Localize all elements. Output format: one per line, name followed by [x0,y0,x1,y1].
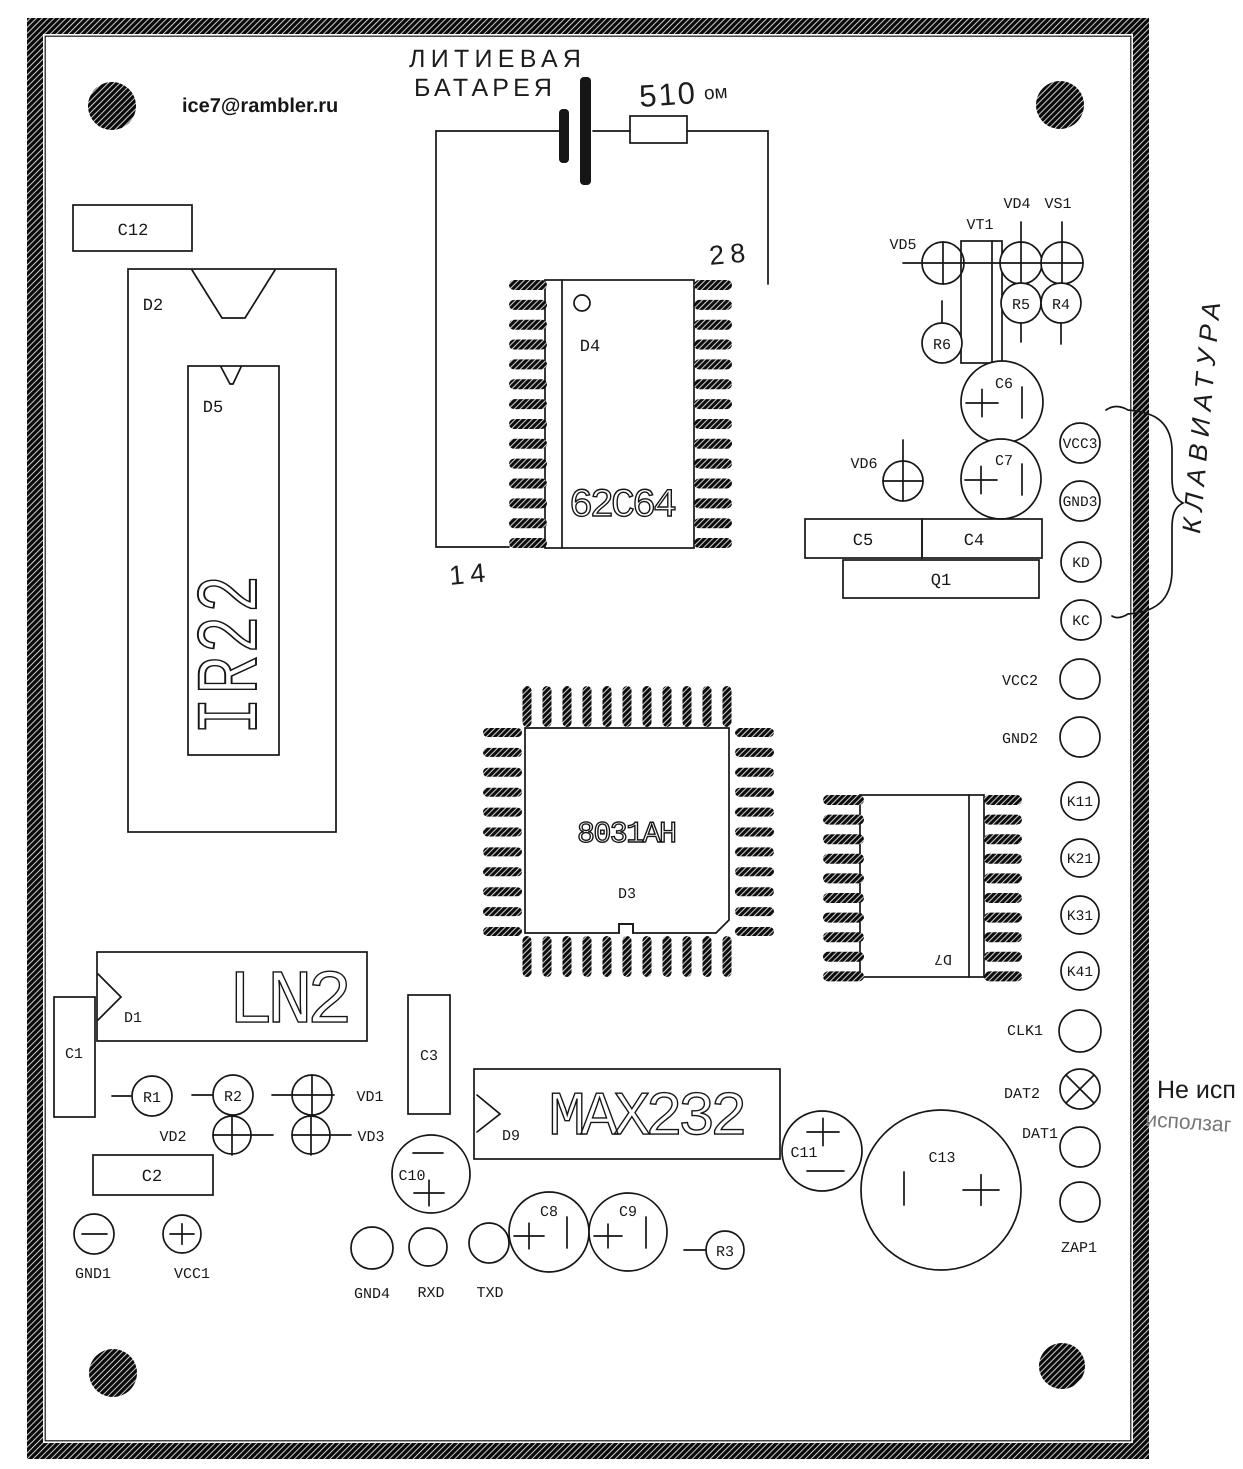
svg-text:CLK1: CLK1 [1007,1023,1043,1040]
svg-text:R6: R6 [933,337,951,354]
svg-text:28: 28 [708,237,753,271]
svg-text:62C64: 62C64 [569,484,677,529]
svg-text:K11: K11 [1067,795,1093,811]
svg-text:VCC1: VCC1 [174,1266,210,1283]
svg-text:14: 14 [448,557,493,591]
svg-text:D4: D4 [580,338,600,357]
svg-text:VT1: VT1 [966,217,993,234]
svg-text:VD5: VD5 [889,237,916,254]
svg-text:VD6: VD6 [850,456,877,473]
svg-text:GND3: GND3 [1063,495,1098,511]
svg-text:GND1: GND1 [75,1266,111,1283]
svg-text:K31: K31 [1067,909,1093,925]
svg-text:TXD: TXD [476,1285,503,1302]
svg-text:R1: R1 [143,1090,161,1107]
svg-text:D2: D2 [143,297,163,316]
svg-text:DAT1: DAT1 [1022,1126,1058,1143]
svg-text:LN2: LN2 [227,959,352,1045]
svg-text:MAX232: MAX232 [548,1082,747,1153]
svg-text:C1: C1 [65,1046,83,1063]
svg-text:K41: K41 [1067,965,1093,981]
svg-text:C4: C4 [964,532,984,551]
svg-text:C3: C3 [420,1048,438,1065]
svg-text:C9: C9 [619,1204,637,1221]
svg-text:R2: R2 [224,1089,242,1106]
svg-text:RXD: RXD [417,1285,444,1302]
svg-text:VCC3: VCC3 [1063,437,1098,453]
svg-text:VD2: VD2 [159,1129,186,1146]
svg-text:C7: C7 [995,453,1013,470]
svg-text:D1: D1 [124,1010,142,1027]
svg-text:VCC2: VCC2 [1002,673,1038,690]
svg-text:D5: D5 [203,399,223,418]
svg-text:KD: KD [1072,556,1089,572]
svg-text:VD3: VD3 [357,1129,384,1146]
svg-text:R5: R5 [1012,297,1030,314]
svg-text:GND2: GND2 [1002,731,1038,748]
svg-text:C8: C8 [540,1204,558,1221]
svg-text:R4: R4 [1052,297,1070,314]
svg-text:KC: KC [1072,614,1090,630]
svg-text:D9: D9 [502,1128,520,1145]
svg-text:VS1: VS1 [1044,196,1071,213]
svg-text:C13: C13 [928,1150,955,1167]
svg-text:C6: C6 [995,376,1013,393]
svg-text:GND4: GND4 [354,1286,390,1303]
svg-text:R3: R3 [716,1244,734,1261]
svg-text:VD4: VD4 [1003,196,1030,213]
svg-text:K21: K21 [1067,852,1093,868]
svg-text:Не исп: Не исп [1157,1076,1236,1104]
svg-text:Q1: Q1 [931,572,951,591]
svg-text:8031AH: 8031AH [577,818,677,852]
svg-text:C5: C5 [853,532,873,551]
svg-text:ice7@rambler.ru: ice7@rambler.ru [182,95,338,117]
svg-text:D7: D7 [934,950,952,967]
svg-text:C2: C2 [142,1168,162,1187]
svg-text:C11: C11 [790,1145,817,1162]
svg-text:C12: C12 [118,222,149,241]
svg-text:C10: C10 [398,1168,425,1185]
svg-text:VD1: VD1 [356,1089,383,1106]
svg-text:ZAP1: ZAP1 [1061,1240,1097,1257]
svg-text:DAT2: DAT2 [1004,1086,1040,1103]
svg-text:D3: D3 [618,886,636,903]
